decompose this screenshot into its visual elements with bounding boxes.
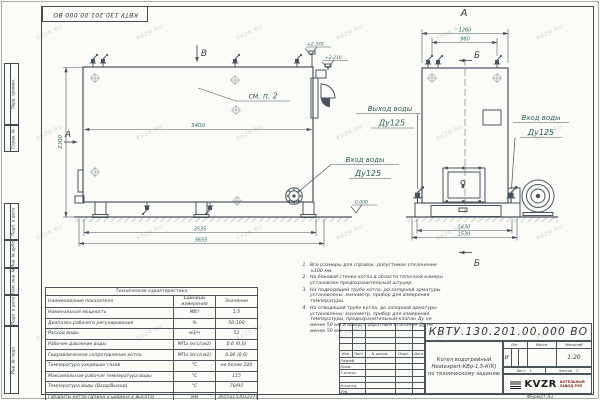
left-view-supports — [93, 202, 316, 218]
right-view-dimensions: 1260 960 Б 1430 1530 Б Выход воды Ду125 — [356, 28, 569, 270]
row-tkontr: Т.контр. — [341, 370, 357, 375]
tech-col-value: Значение — [216, 296, 258, 308]
col-izm: Изм — [339, 351, 352, 357]
note-number: 2. — [299, 275, 310, 287]
note-text: Все размеры для справок, допустимое откл… — [310, 263, 448, 275]
sheets-cell: Листов 2 — [545, 367, 592, 374]
view-mark-b: В — [201, 49, 207, 59]
manufacturer-logo-cell: KVZR КОТЕЛЬНЫЙ ЗАВОД РЭП — [503, 374, 592, 394]
stamp-vzam-inv: Взам. инв. № — [4, 268, 19, 295]
tech-row: Рабочее давление водыМПа (кгс/см2)0,6 (6… — [46, 339, 258, 350]
param-units: МПа (кгс/см2) — [174, 350, 216, 361]
note-number: 4. — [299, 306, 310, 335]
kvzr-logo-icon — [510, 380, 521, 389]
tech-row: Диапазон рабочего регулирования%50-100 — [46, 318, 258, 329]
param-value: 52 — [216, 329, 258, 340]
tech-col-name: Наименование показателя — [46, 296, 174, 308]
product-name-cell: Котел водогрейный Heatexpert-КВр-1,5-К(К… — [425, 341, 503, 394]
param-value: 70/95 — [216, 382, 258, 393]
tech-row: Расход водым3/ч52 — [46, 329, 258, 340]
lit-value: И — [503, 348, 511, 367]
stamp-label: Подп. и дата — [11, 208, 16, 236]
note-item: 3.На подводящей трубе котла, до запорной… — [299, 288, 448, 306]
tech-col-units: Единицы измерения — [174, 296, 216, 308]
outlet-label: Выход воды — [368, 105, 413, 113]
param-units: °С — [174, 371, 216, 382]
param-name: Габариты котла (Длина х ширина х высота) — [46, 392, 174, 400]
inlet-dn-left: Ду125 — [354, 169, 381, 178]
logo-caption: КОТЕЛЬНЫЙ ЗАВОД РЭП — [560, 380, 585, 389]
param-name: Гидравлическое сопротивление котла — [46, 350, 174, 361]
stamp-perv-primen: Перв. примен. — [4, 63, 19, 125]
dim-1430: 1430 — [458, 225, 471, 231]
title-block: Изм Лист N докум. Подп. Дата Разраб. Про… — [339, 323, 592, 394]
tech-row: Температура уходящих газов°Сне более 220 — [46, 360, 258, 371]
inlet-label-right: Вход воды — [521, 114, 561, 122]
param-name: Номинальная мощность — [46, 308, 174, 319]
col-data: Дата — [412, 351, 425, 357]
note-item: 2.На боковой стенке котла в области топо… — [299, 275, 448, 287]
param-units: МПа (кгс/см2) — [174, 339, 216, 350]
section-mark-b-top: Б — [474, 51, 480, 61]
outlet-dn: Ду125 — [378, 119, 405, 128]
tech-row: Гидравлическое сопротивление котлаМПа (к… — [46, 350, 258, 361]
sheet-label: Лист — [516, 369, 525, 373]
view-mark-a: А — [64, 130, 71, 140]
left-view-dimensions: 3400 2300 3535 3655 см. п. 2 В А — [58, 42, 399, 247]
param-units: °С — [174, 360, 216, 371]
sheets-value: 2 — [576, 369, 578, 373]
dim-3400: 3400 — [191, 123, 205, 129]
furnace-door — [443, 167, 485, 203]
dim-960: 960 — [460, 37, 470, 43]
param-name: Температура воды (Вход/Выход) — [46, 382, 174, 393]
mass-header: Масса — [527, 342, 556, 348]
stamp-label: Инв. № дубл. — [11, 240, 16, 268]
col-podp: Подп. — [395, 351, 412, 357]
param-name: Диапазон рабочего регулирования — [46, 318, 174, 329]
param-value: 0,6 (6,0) — [216, 339, 258, 350]
param-name: Рабочее давление воды — [46, 339, 174, 350]
section-mark-b-bottom: Б — [474, 259, 480, 269]
tech-row: Температура воды (Вход/Выход)°С70/95 — [46, 382, 258, 393]
row-nkontr: Н.контр. — [341, 383, 358, 388]
corner-designation-text: КВТУ.130.201.00.000 ВО — [53, 11, 138, 18]
stamp-label: Справ. № — [11, 129, 16, 149]
param-value: 50-100 — [216, 318, 258, 329]
stamp-inv-dubl: Инв. № дубл. — [4, 240, 19, 268]
tech-characteristics-table: Техническая характеристика Наименование … — [45, 287, 258, 400]
sheet-value: 1 — [529, 369, 531, 373]
sheets-label: Листов — [559, 369, 572, 373]
dim-2300: 2300 — [58, 135, 64, 149]
dim-1530: 1530 — [458, 232, 471, 238]
note-text: На подводящей трубе котла, до запорной а… — [310, 288, 448, 306]
product-name-line1: Котел водогрейный — [437, 357, 491, 364]
stamp-label: Подп. и дата — [11, 297, 16, 325]
tech-row: Номинальная мощностьМВт1,5 — [46, 308, 258, 319]
note-number: 1. — [299, 263, 310, 275]
stamp-label: Перв. примен. — [11, 79, 16, 110]
param-value: 0,06 (0,6) — [216, 350, 258, 361]
boiler-drawing: 3400 2300 3535 3655 см. п. 2 В А — [0, 0, 600, 282]
inlet-dn-right: Ду125 — [527, 128, 554, 137]
right-view-title: А — [460, 8, 468, 19]
row-utv: Утв. — [341, 389, 349, 394]
param-units: м3/ч — [174, 329, 216, 340]
see-note-ref: см. п. 2 — [249, 92, 278, 101]
param-value: не более 220 — [216, 360, 258, 371]
param-name: Максимальная рабочая температура воды — [46, 371, 174, 382]
row-prov: Пров. — [341, 364, 352, 369]
kvzr-logo-text: KVZR — [524, 379, 556, 390]
stamp-label: Инв. № подл. — [11, 346, 16, 374]
product-name-line2: Heatexpert-КВр-1,5-К(К) — [431, 364, 496, 371]
param-value: 1,5 — [216, 308, 258, 319]
param-units: % — [174, 318, 216, 329]
sheet-cell: Лист 1 — [503, 367, 545, 374]
param-units: мм — [174, 392, 216, 400]
elev-zero: 0.000 — [355, 200, 368, 206]
product-name-line3: по техническому заданию — [428, 371, 500, 378]
inlet-label-left: Вход воды — [345, 156, 385, 164]
designation-cell: КВТУ.130.201.00.000 ВО — [425, 323, 592, 341]
dim-1260: 1260 — [459, 28, 472, 34]
row-razrab: Разраб. — [341, 358, 356, 363]
stamp-podp-data-1: Подп. и дата — [4, 203, 19, 240]
stamp-podp-data-2: Подп. и дата — [4, 295, 19, 326]
param-name: Температура уходящих газов — [46, 360, 174, 371]
drawing-sheet: KVZR.RUKVZR.RUKVZR.RUKVZR.RUKVZR.RUKVZR.… — [0, 0, 600, 400]
param-value: 3655х1530х2370 — [216, 392, 258, 400]
tech-row: Габариты котла (Длина х ширина х высота)… — [46, 392, 258, 400]
stamp-label: Взам. инв. № — [11, 268, 16, 296]
scale-header: Масштаб — [556, 342, 592, 348]
elev-mid: +2.210 — [325, 55, 342, 61]
left-view — [74, 51, 352, 222]
param-value: 115 — [216, 371, 258, 382]
designation-text: КВТУ.130.201.00.000 ВО — [429, 326, 589, 338]
note-number: 3. — [299, 288, 310, 306]
col-ndocum: N докум. — [365, 351, 395, 357]
stamp-sprav-no: Справ. № — [4, 125, 19, 152]
dim-3655: 3655 — [195, 238, 208, 244]
lit-header: Лит. — [503, 342, 527, 348]
param-units: °С — [174, 382, 216, 393]
scale-value: 1:20 — [556, 348, 592, 367]
corner-designation-box: КВТУ.130.201.00.000 ВО — [42, 6, 148, 22]
elev-top: +2.370 — [307, 42, 324, 48]
param-name: Расход воды — [46, 329, 174, 340]
format-label: Формат А3 — [527, 395, 553, 400]
note-item: 1.Все размеры для справок, допустимое от… — [299, 263, 448, 275]
dim-3535: 3535 — [194, 227, 207, 233]
stamp-inv-podl: Инв. № подл. — [4, 326, 19, 394]
tech-row: Максимальная рабочая температура воды°С1… — [46, 371, 258, 382]
col-list: Лист — [352, 351, 365, 357]
tech-table-title: Техническая характеристика — [46, 288, 258, 296]
param-units: МВт — [174, 308, 216, 319]
logo-caption-line2: ЗАВОД РЭП — [560, 384, 585, 388]
note-text: На боковой стенке котла в области топочн… — [310, 275, 448, 287]
